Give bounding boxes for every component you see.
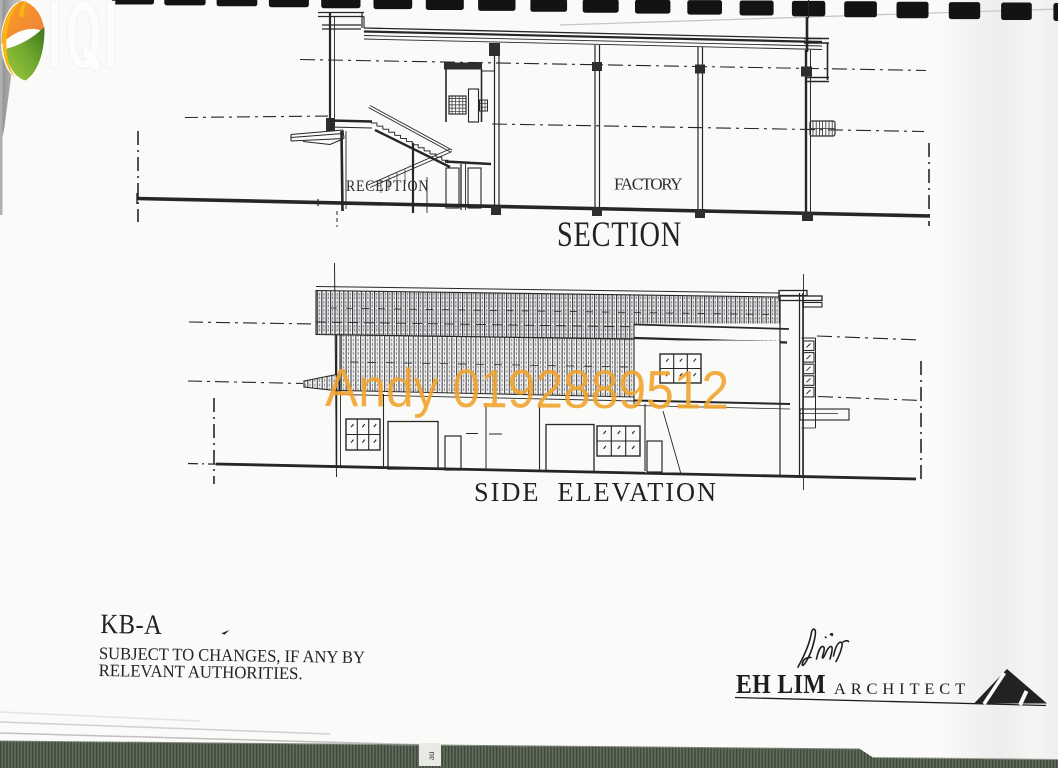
svg-text:RECEPTION: RECEPTION [346,178,429,195]
svg-text:SIDE ELEVATION: SIDE ELEVATION [474,477,718,507]
svg-text:Andy 0192889512: Andy 0192889512 [325,358,729,421]
svg-text:FACTORY: FACTORY [614,175,684,194]
svg-text:SECTION: SECTION [557,214,682,254]
svg-text:au: au [426,751,436,760]
svg-text:KB-A: KB-A [100,609,163,641]
svg-text:ARCHITECT: ARCHITECT [834,681,970,698]
svg-text:RELEVANT AUTHORITIES.: RELEVANT AUTHORITIES. [99,660,303,683]
svg-text:EH LIM: EH LIM [736,669,826,699]
